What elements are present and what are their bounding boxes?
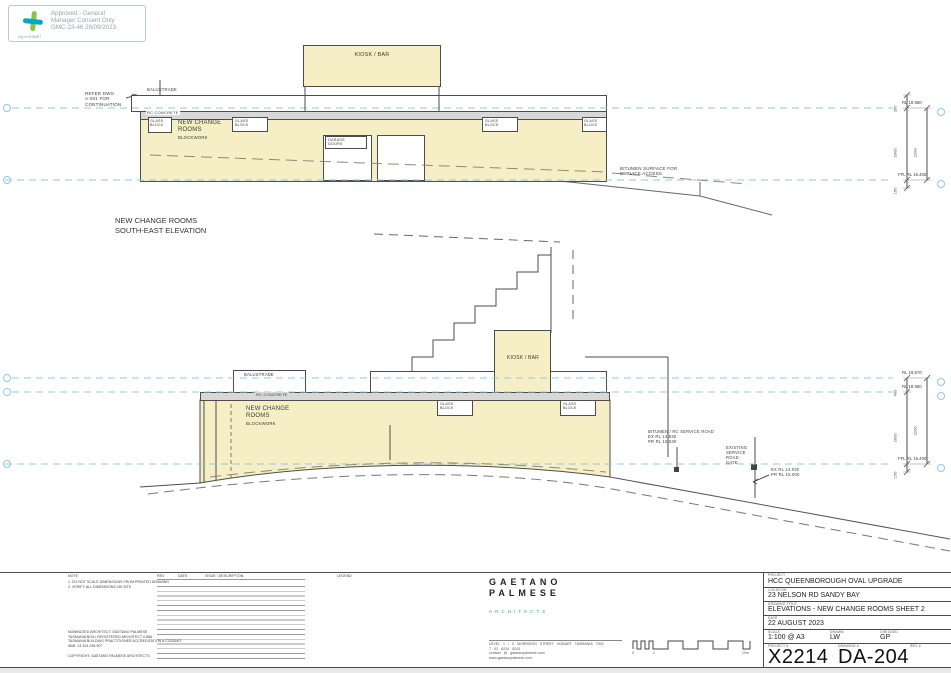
e1-rooms-label: NEW CHANGE ROOMS BLOCKWORK — [178, 120, 221, 142]
e2-rl-ffl: FFL RL 16.400 — [898, 456, 926, 461]
addr-3: contact @ gaetanopalmese.com — [489, 651, 545, 655]
e2-kiosk-label: KIOSK / BAR — [497, 356, 549, 361]
e1-rc-concrete-label: RC CONCRETE — [146, 110, 180, 115]
e1-balustrade-label: BALUSTRADE — [147, 87, 177, 92]
bitumen-l1: BITUMEN SURFACE FOR — [620, 166, 677, 171]
date-header: DATE — [178, 574, 187, 579]
projectno-value: X2214 — [768, 646, 828, 669]
drawing-title-value: ELEVATIONS - NEW CHANGE ROOMS SHEET 2 — [768, 606, 925, 613]
arch-1: NOMINATED ARCHITECT: GAETANO PALMESE — [68, 630, 147, 634]
drawingno-value: DA-204 — [838, 646, 909, 669]
addr-4: www.gaetanopalmese.com — [489, 656, 532, 660]
project-label: PROJECT — [768, 573, 785, 577]
e2-dim-400: 400 — [894, 389, 899, 396]
note-header: NOTE — [68, 574, 78, 579]
e2-dim-2000: 2000 — [894, 433, 899, 442]
e1-dim-2000: 2000 — [894, 148, 899, 157]
e1-dim-150: 150 — [894, 187, 899, 194]
field-divider — [763, 587, 951, 588]
gate-l4: GATE — [726, 460, 738, 465]
project-value: HCC QUEENBOROUGH OVAL UPGRADE — [768, 578, 903, 585]
e1-title: NEW CHANGE ROOMS SOUTH-EAST ELEVATION — [115, 216, 206, 235]
rooms-l1: NEW CHANGE — [246, 406, 289, 412]
e1-dim-350: 350 — [894, 105, 899, 112]
e1-title-l2: SOUTH-EAST ELEVATION — [115, 226, 206, 235]
firm-divider — [489, 640, 622, 641]
road-l3: PR RL 15.530 — [648, 439, 677, 444]
scalebar-end: 10m — [742, 651, 749, 655]
e2-road-note: BITUMEN / RC SERVICE ROAD EX RL 14.530 P… — [648, 429, 714, 444]
drawn-value: LW — [830, 634, 840, 641]
e1-rl-top: RL 18.950 — [902, 100, 922, 105]
rev-header: REV — [157, 574, 164, 579]
level-lines — [4, 105, 945, 472]
legend-header: LEGEND — [337, 574, 352, 579]
date-value: 22 AUGUST 2023 — [768, 620, 824, 627]
rooms-l2: ROOMS — [246, 413, 270, 419]
e2-rc-concrete-label: RC CONCRETE — [255, 392, 289, 397]
rooms-l1: NEW CHANGE — [178, 120, 221, 126]
e1-refer-note: REFER DWG A-201 FOR CONTINUATION — [85, 91, 121, 107]
e1-rl-ffl: FFL RL 16.400 — [898, 172, 926, 177]
e2-gate-note: EXISTING SERVICE ROAD GATE — [726, 445, 747, 465]
rev-table-rows — [157, 582, 305, 659]
e1-kiosk-label: KIOSK / BAR — [303, 53, 441, 58]
e2-rl-mid: RL 18.950 — [902, 384, 922, 389]
e2-dim-150: 150 — [894, 471, 899, 478]
field-divider — [763, 629, 951, 630]
issue-header: ISSUE / DESCRIPTION — [205, 574, 243, 579]
drawing-sheet: Approved - General Manager Consent Only … — [0, 0, 951, 673]
e1-kiosk-posts — [305, 87, 439, 111]
scalebar-one: 1 — [653, 651, 655, 655]
refer-l2: A-201 FOR — [85, 96, 110, 101]
firm-address: LEVEL 1 / 5 MORRISON STREET HOBART TASMA… — [489, 642, 604, 661]
e2-rl-top: RL 19.570 — [902, 370, 922, 375]
refer-l1: REFER DWG — [85, 91, 114, 96]
scale-bar — [632, 635, 752, 651]
e2-dim-2200: 2200 — [914, 426, 919, 435]
addr-2: T 03 6234 5243 — [489, 647, 520, 651]
scalebar-zero: 0 — [632, 651, 634, 655]
rev-header-underline — [157, 579, 305, 580]
firm-subtitle: ARCHITECTS — [489, 609, 548, 614]
bitumen-l2: SERVICE ACCESS — [620, 171, 662, 176]
scale-value: 1:100 @ A3 — [768, 634, 805, 641]
checked-value: GP — [880, 634, 890, 641]
e2-rooms-label: NEW CHANGE ROOMS BLOCKWORK — [246, 406, 289, 428]
addr-1: LEVEL 1 / 5 MORRISON STREET HOBART TASMA… — [489, 642, 604, 646]
firm-name-line2: PALMESE — [489, 588, 560, 598]
arch-2: TASMANIA BOA / REGISTERED ARCHITECT # 88… — [68, 635, 152, 639]
e2-rl2-note: EX RL 14.030 PR RL 15.000 — [771, 467, 800, 477]
rooms-l3: BLOCKWORK — [178, 135, 208, 140]
rooms-l2: ROOMS — [178, 127, 202, 133]
e1-bitumen-note: BITUMEN SURFACE FOR SERVICE ACCESS — [620, 166, 677, 177]
e1-dim-2200: 2200 — [914, 148, 919, 157]
firm-name-line1: GAETANO — [489, 577, 561, 587]
refer-l3: CONTINUATION — [85, 102, 121, 107]
note-2: 2. VERIFY ALL DIMENSIONS ON SITE — [68, 585, 131, 590]
arch-4: ABN: 24 324 038 907 — [68, 644, 102, 648]
location-value: 23 NELSON RD SANDY BAY — [768, 592, 860, 599]
titleblock-top-border — [0, 572, 951, 573]
rl2-l2: PR RL 15.000 — [771, 472, 800, 477]
field-divider — [763, 615, 951, 616]
note-1: 1. DO NOT SCALE DIMENSIONS FROM PRINTED … — [68, 580, 169, 585]
revno-label: REV # — [910, 644, 921, 648]
copyright-note: COPYRIGHT: GAETANO PALMESE ARCHITECTS — [68, 654, 150, 659]
e1-title-l1: NEW CHANGE ROOMS — [115, 216, 197, 225]
e2-balustrade-label: BALUSTRADE — [244, 372, 274, 377]
rooms-l3: BLOCKWORK — [246, 421, 276, 426]
